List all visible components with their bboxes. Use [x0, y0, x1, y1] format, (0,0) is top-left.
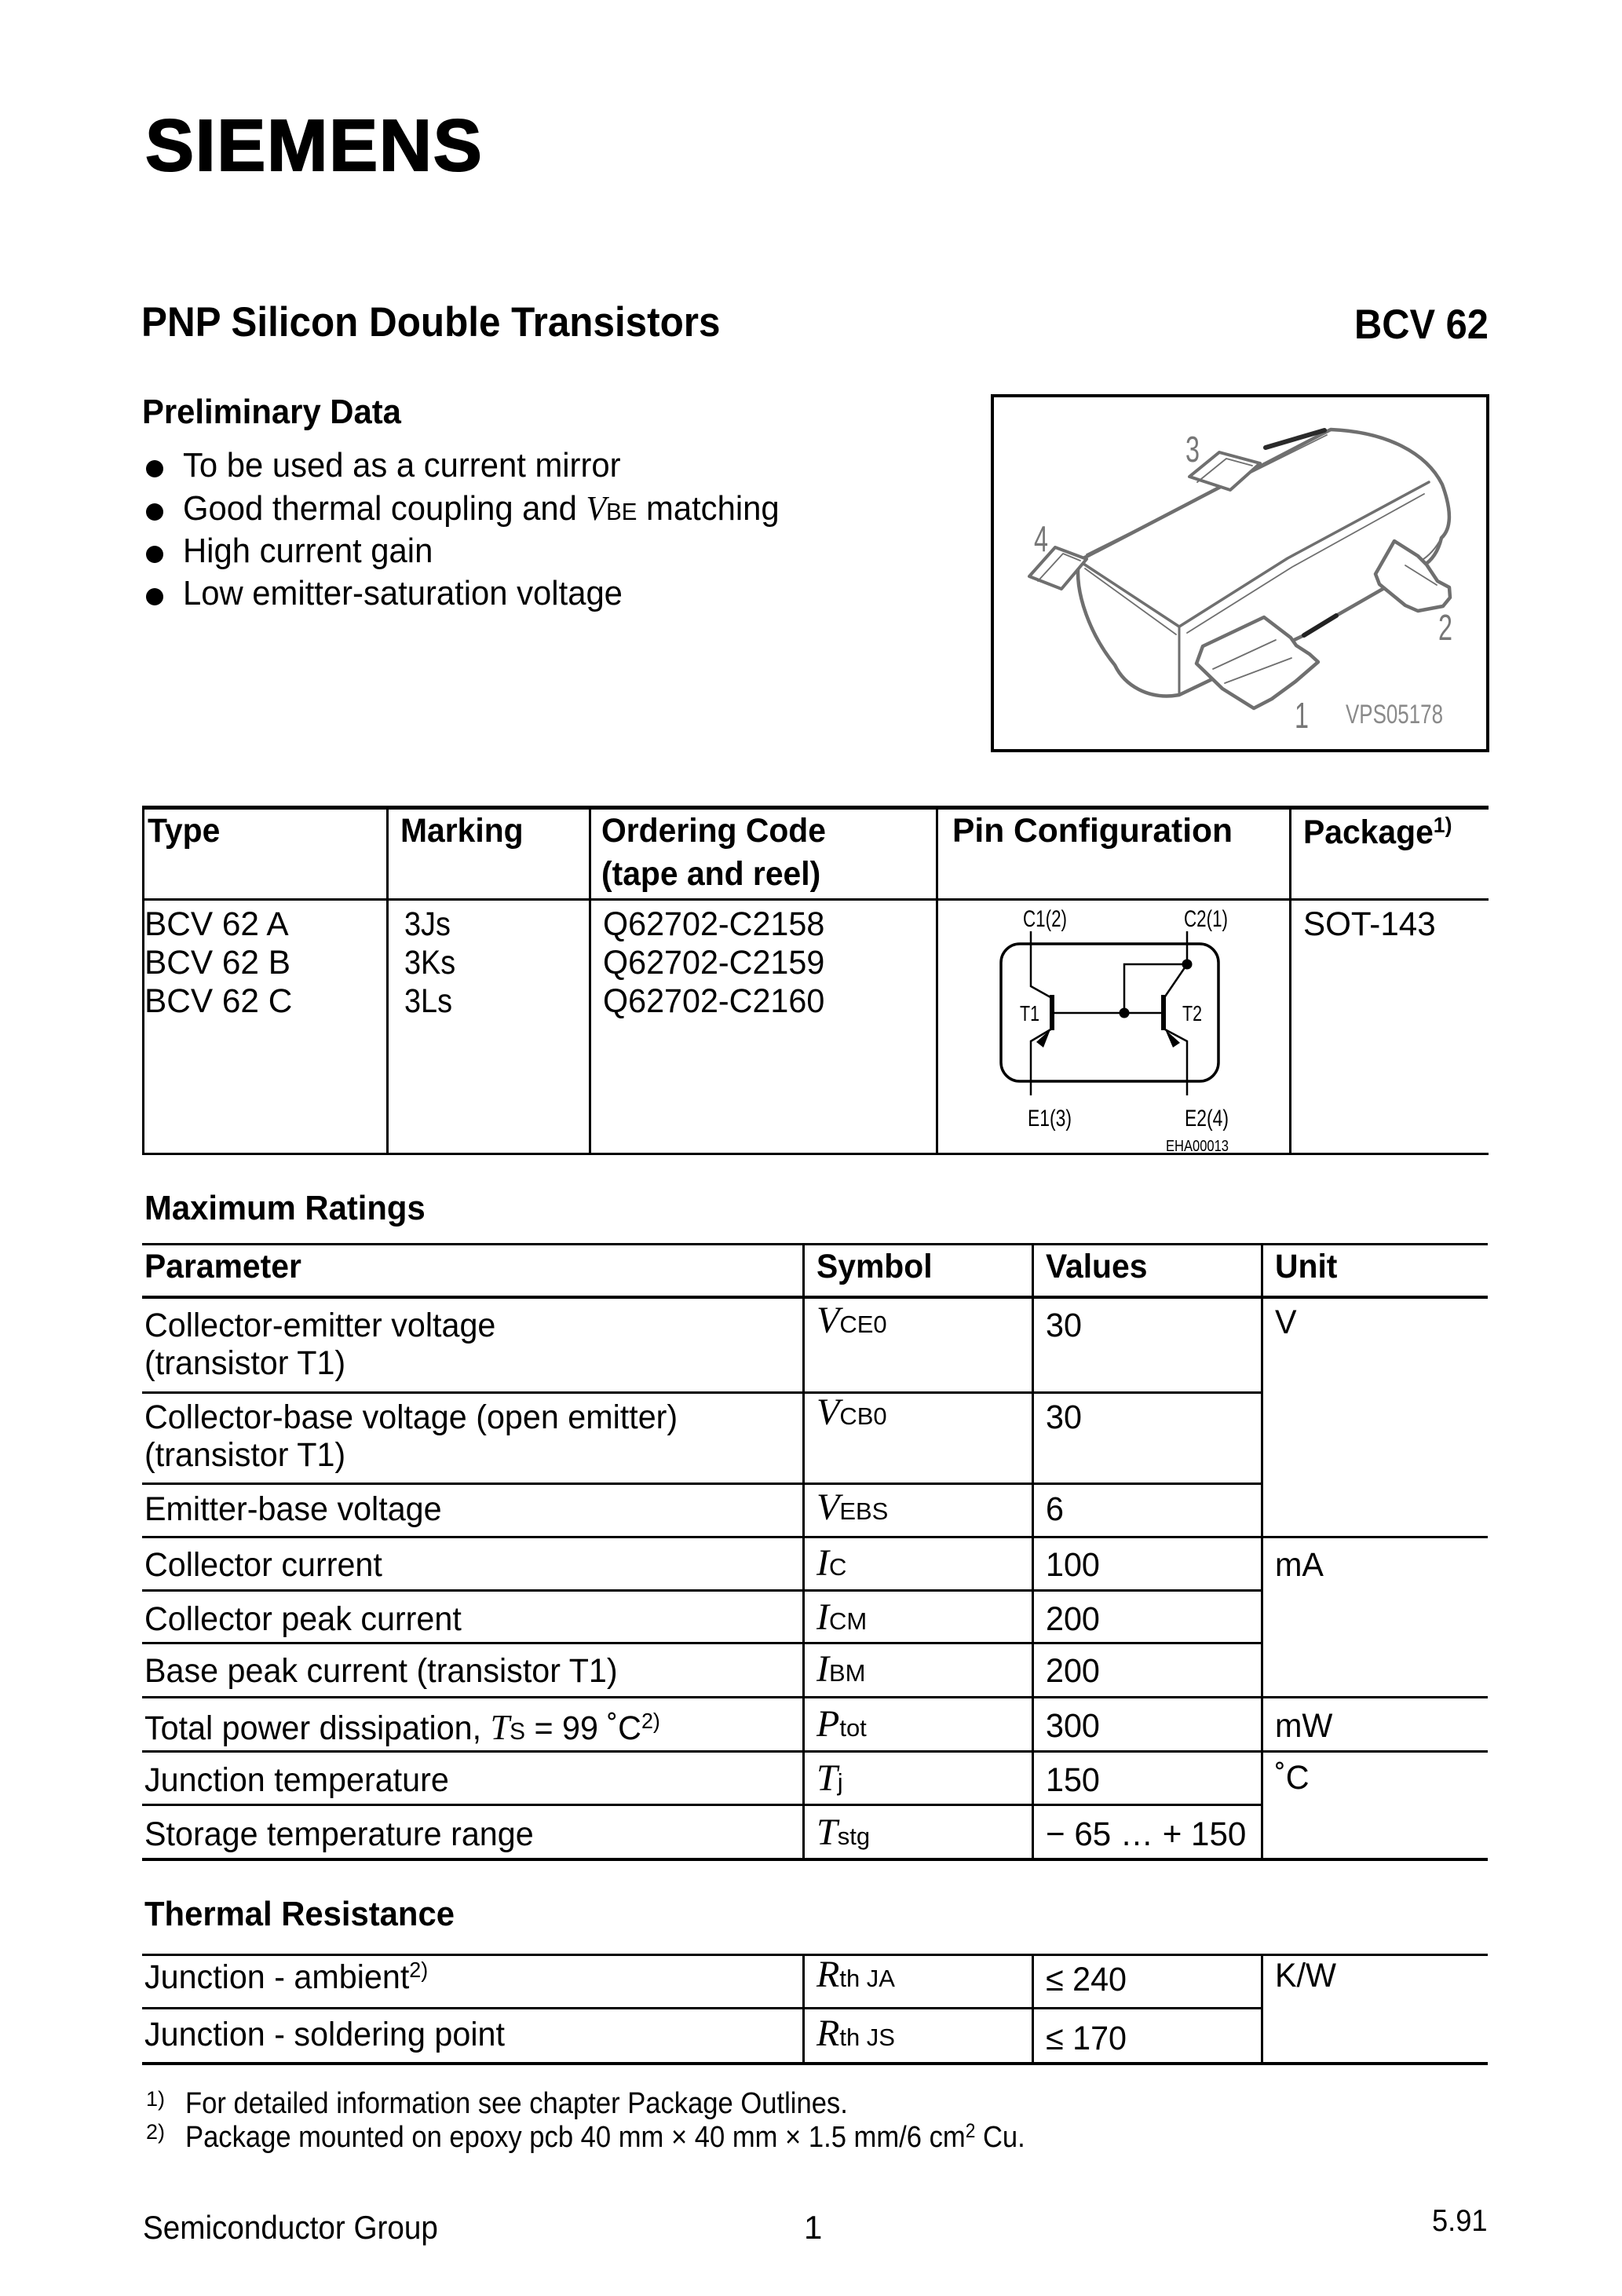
svg-text:3: 3	[1185, 429, 1200, 470]
svg-text:E2(4): E2(4)	[1185, 1106, 1229, 1132]
svg-text:T1: T1	[1020, 1001, 1039, 1026]
svg-text:T2: T2	[1182, 1001, 1202, 1026]
svg-text:C2(1): C2(1)	[1184, 906, 1228, 932]
svg-text:EHA00013: EHA00013	[1166, 1138, 1229, 1153]
svg-text:E1(3): E1(3)	[1028, 1106, 1072, 1132]
svg-text:1: 1	[1295, 695, 1309, 736]
svg-text:C1(2): C1(2)	[1023, 906, 1067, 932]
svg-text:VPS05178: VPS05178	[1346, 700, 1443, 729]
svg-text:4: 4	[1034, 518, 1048, 559]
svg-text:2: 2	[1438, 607, 1452, 648]
